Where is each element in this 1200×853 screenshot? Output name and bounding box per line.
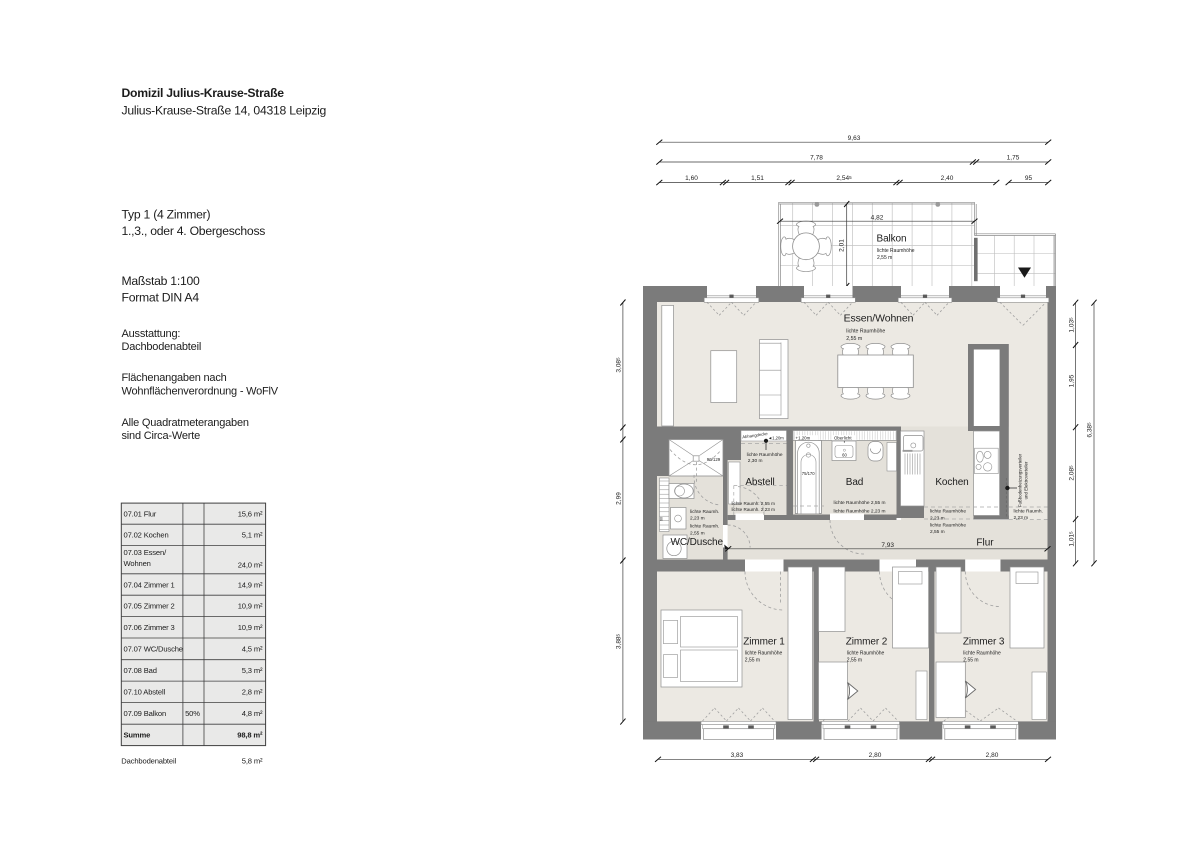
svg-text:lichte Raumhöhe: lichte Raumhöhe: [846, 329, 885, 335]
svg-text:Typ 1 (4 Zimmer): Typ 1 (4 Zimmer): [122, 208, 211, 222]
svg-text:lichte Raumhöhe: lichte Raumhöhe: [930, 509, 966, 515]
svg-text:4,82: 4,82: [871, 214, 884, 221]
svg-text:lichte Raumhöhe 2,23 m: lichte Raumhöhe 2,23 m: [834, 508, 886, 514]
svg-text:2,23 m: 2,23 m: [1014, 515, 1029, 521]
svg-text:Abstell: Abstell: [745, 477, 774, 488]
svg-text:2,55 m: 2,55 m: [930, 529, 945, 535]
svg-text:Flur: Flur: [976, 538, 994, 549]
svg-text:15,6 m²: 15,6 m²: [238, 510, 263, 519]
svg-text:und Elektroverteiler: und Elektroverteiler: [1024, 461, 1029, 499]
svg-text:07.01 Flur: 07.01 Flur: [124, 510, 157, 519]
svg-text:Dachbodenabteil: Dachbodenabteil: [122, 341, 202, 353]
svg-text:Julius-Krause-Straße 14, 04318: Julius-Krause-Straße 14, 04318 Leipzig: [122, 104, 327, 118]
svg-text:2,55 m: 2,55 m: [846, 336, 862, 342]
svg-text:2,55 m: 2,55 m: [963, 657, 978, 663]
svg-text:2,8 m²: 2,8 m²: [242, 688, 263, 697]
svg-text:95: 95: [1025, 175, 1033, 182]
svg-text:Wohnen: Wohnen: [124, 559, 151, 568]
svg-text:4,8 m²: 4,8 m²: [242, 709, 263, 718]
svg-text:4,5 m²: 4,5 m²: [242, 645, 263, 654]
svg-text:Flächenangaben nach: Flächenangaben nach: [122, 372, 227, 384]
svg-text:lichte Raumh.: lichte Raumh.: [1014, 508, 1043, 514]
svg-text:98,8 m²: 98,8 m²: [237, 731, 263, 740]
svg-text:3,83: 3,83: [731, 752, 744, 759]
svg-text:1,60: 1,60: [685, 175, 698, 182]
svg-text:lichte Raumhöhe: lichte Raumhöhe: [745, 651, 783, 657]
svg-text:1,75: 1,75: [1007, 155, 1020, 162]
svg-text:lichte Raumh. 2,23 m: lichte Raumh. 2,23 m: [732, 507, 776, 512]
svg-text:14,9 m²: 14,9 m²: [238, 580, 263, 589]
svg-text:90/129: 90/129: [707, 457, 721, 462]
svg-text:5,3 m²: 5,3 m²: [242, 666, 263, 675]
svg-text:60: 60: [842, 453, 847, 458]
svg-text:60: 60: [659, 517, 663, 521]
svg-text:Zimmer 1: Zimmer 1: [743, 637, 785, 648]
svg-text:Wohnflächenverordnung - WoFlV: Wohnflächenverordnung - WoFlV: [122, 386, 279, 398]
svg-text:2,40: 2,40: [941, 175, 954, 182]
svg-text:7,93: 7,93: [881, 542, 894, 549]
svg-text:+1,20m: +1,20m: [796, 436, 811, 441]
svg-text:75/170: 75/170: [802, 471, 815, 476]
svg-text:lichte Raumhöhe 2,55 m: lichte Raumhöhe 2,55 m: [834, 500, 886, 506]
svg-text:2,23 m: 2,23 m: [930, 516, 945, 522]
svg-text:07.06 Zimmer 3: 07.06 Zimmer 3: [124, 623, 175, 632]
svg-text:2,55 m: 2,55 m: [877, 255, 892, 261]
svg-text:5,1 m²: 5,1 m²: [242, 531, 263, 540]
svg-text:Essen/Wohnen: Essen/Wohnen: [844, 312, 914, 324]
svg-text:Maßstab 1:100: Maßstab 1:100: [122, 274, 201, 288]
svg-text:lichte Raumhöhe: lichte Raumhöhe: [930, 522, 966, 528]
svg-text:2,23 m: 2,23 m: [690, 516, 705, 522]
svg-text:lichte Raumhöhe: lichte Raumhöhe: [877, 248, 915, 254]
svg-text:◄1,20m: ◄1,20m: [768, 435, 784, 440]
svg-text:Balkon: Balkon: [877, 233, 907, 244]
svg-text:lichte Raumhöhe: lichte Raumhöhe: [963, 651, 1001, 657]
svg-text:5,8 m²: 5,8 m²: [242, 757, 263, 766]
svg-text:lichte Raumh.: lichte Raumh.: [690, 523, 719, 529]
svg-text:2,99: 2,99: [616, 492, 623, 505]
svg-text:Oberlicht: Oberlicht: [834, 436, 852, 441]
svg-text:1,51: 1,51: [751, 175, 764, 182]
svg-text:1,95: 1,95: [1068, 374, 1075, 387]
svg-text:Alle Quadratmeterangaben: Alle Quadratmeterangaben: [122, 417, 249, 429]
svg-text:WC/Dusche: WC/Dusche: [671, 537, 724, 548]
svg-text:07.08 Bad: 07.08 Bad: [124, 666, 157, 675]
svg-text:07.07 WC/Dusche: 07.07 WC/Dusche: [124, 645, 183, 654]
svg-text:50%: 50%: [185, 709, 200, 718]
svg-text:10,9 m²: 10,9 m²: [238, 623, 263, 632]
svg-text:07.02 Kochen: 07.02 Kochen: [124, 531, 169, 540]
svg-text:Format DIN A4: Format DIN A4: [122, 291, 200, 305]
svg-text:Ausstattung:: Ausstattung:: [122, 328, 181, 340]
svg-text:1.,3., oder 4. Obergeschoss: 1.,3., oder 4. Obergeschoss: [122, 224, 266, 238]
svg-text:Bad: Bad: [846, 477, 864, 488]
svg-text:24,0 m²: 24,0 m²: [238, 560, 263, 569]
svg-text:2,80: 2,80: [986, 752, 999, 759]
svg-text:2,55 m: 2,55 m: [745, 657, 760, 663]
svg-text:2,55 m: 2,55 m: [847, 657, 862, 663]
svg-text:07.10 Abstell: 07.10 Abstell: [124, 688, 166, 697]
svg-text:2,01: 2,01: [839, 239, 846, 252]
svg-text:lichte Raumhöhe: lichte Raumhöhe: [747, 452, 783, 458]
svg-text:07.03 Essen/: 07.03 Essen/: [124, 548, 168, 557]
svg-text:Kochen: Kochen: [935, 477, 968, 488]
svg-text:sind Circa-Werte: sind Circa-Werte: [122, 430, 201, 442]
svg-text:7,78: 7,78: [810, 155, 823, 162]
svg-text:2,30 m: 2,30 m: [748, 458, 763, 464]
svg-text:07.04 Zimmer 1: 07.04 Zimmer 1: [124, 580, 175, 589]
svg-text:lichte Raumh.: lichte Raumh.: [690, 509, 719, 515]
svg-text:2,55 m: 2,55 m: [690, 530, 705, 536]
svg-text:2,80: 2,80: [869, 752, 882, 759]
svg-text:Summe: Summe: [124, 731, 151, 740]
svg-text:9,63: 9,63: [848, 135, 861, 142]
svg-text:Zimmer 2: Zimmer 2: [846, 637, 888, 648]
svg-text:10,9 m²: 10,9 m²: [238, 602, 263, 611]
svg-text:07.09 Balkon: 07.09 Balkon: [124, 709, 167, 718]
svg-text:Dachbodenabteil: Dachbodenabteil: [121, 757, 176, 766]
svg-text:07.05 Zimmer 2: 07.05 Zimmer 2: [124, 602, 175, 611]
svg-text:Fußbodenheizungsverteiler: Fußbodenheizungsverteiler: [1018, 453, 1023, 507]
svg-text:lichte Raumhöhe: lichte Raumhöhe: [847, 651, 885, 657]
svg-text:lichte Raumh: 2,55 m: lichte Raumh: 2,55 m: [732, 501, 776, 506]
svg-text:Domizil Julius-Krause-Straße: Domizil Julius-Krause-Straße: [122, 86, 285, 100]
svg-text:Zimmer 3: Zimmer 3: [963, 637, 1005, 648]
